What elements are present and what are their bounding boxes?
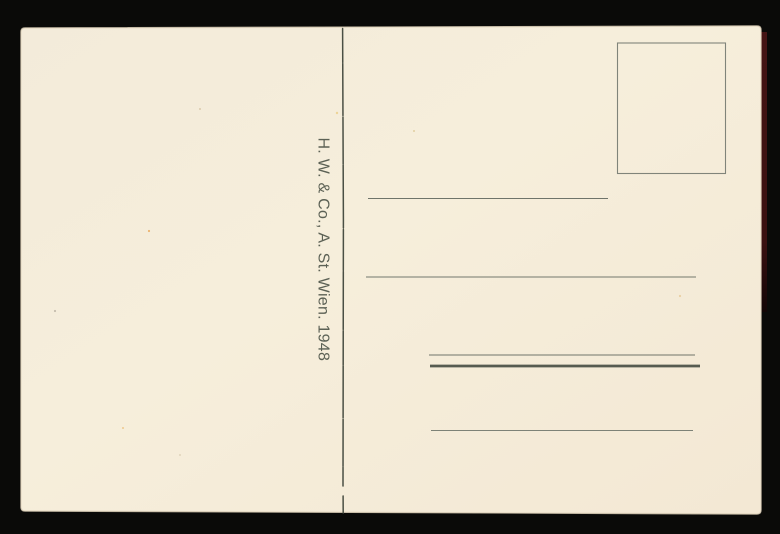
- svg-text:H. W. & Co., A. St. Wien. 1948: H. W. & Co., A. St. Wien. 1948: [315, 138, 332, 362]
